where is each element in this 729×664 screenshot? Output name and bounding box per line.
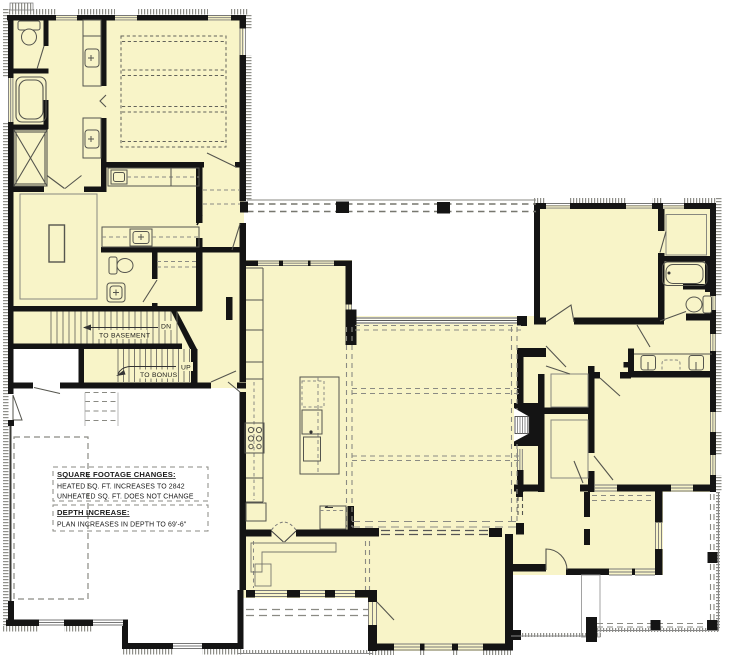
- svg-text:PLAN INCREASES IN DEPTH TO 69': PLAN INCREASES IN DEPTH TO 69'-6": [57, 522, 187, 529]
- svg-text:DEPTH INCREASE:: DEPTH INCREASE:: [57, 508, 130, 517]
- svg-text:TO BONUS: TO BONUS: [140, 372, 178, 379]
- svg-text:DN: DN: [161, 324, 171, 331]
- svg-text:SQUARE FOOTAGE CHANGES:: SQUARE FOOTAGE CHANGES:: [57, 470, 176, 479]
- svg-text:TO BASEMENT: TO BASEMENT: [99, 333, 150, 340]
- svg-text:UP: UP: [181, 365, 191, 372]
- svg-text:HEATED SQ. FT. INCREASES TO 28: HEATED SQ. FT. INCREASES TO 2842: [57, 484, 185, 491]
- svg-text:UNHEATED SQ. FT. DOES NOT CHAN: UNHEATED SQ. FT. DOES NOT CHANGE: [57, 494, 194, 501]
